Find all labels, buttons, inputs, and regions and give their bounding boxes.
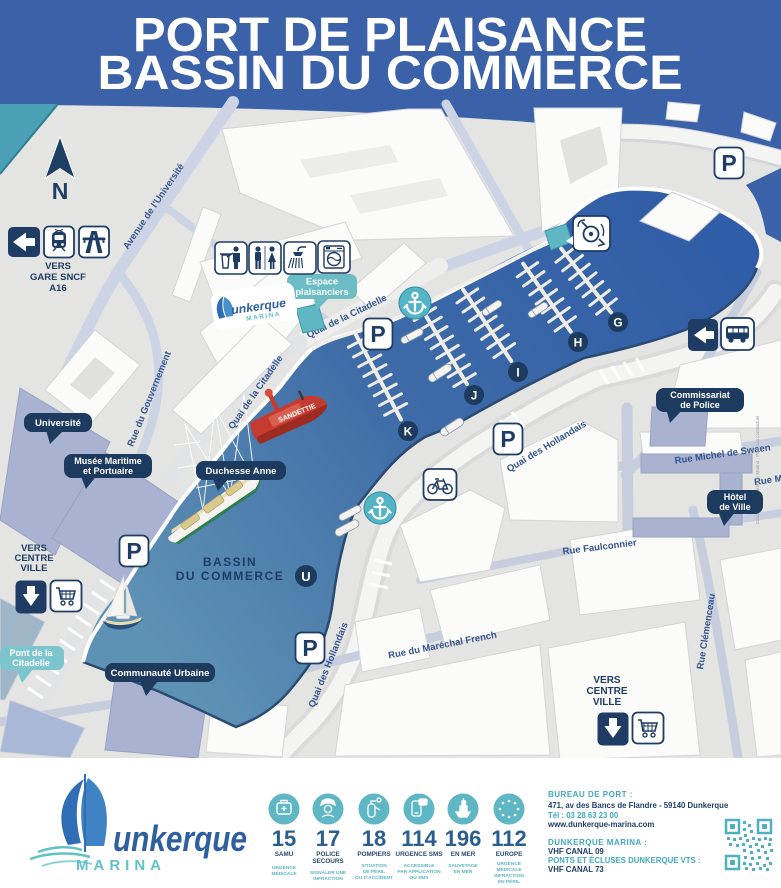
svg-text:Musée Maritime: Musée Maritime (74, 456, 142, 466)
svg-text:INFRACTION: INFRACTION (313, 876, 343, 882)
svg-text:EN MER: EN MER (451, 851, 476, 858)
svg-text:DU COMMERCE: DU COMMERCE (176, 569, 285, 583)
svg-text:Université: Université (35, 418, 81, 429)
svg-text:112: 112 (491, 826, 527, 851)
svg-text:BUREAU DE PORT :: BUREAU DE PORT : (548, 790, 633, 799)
svg-text:VERS: VERS (593, 675, 621, 686)
svg-text:unkerque: unkerque (113, 818, 247, 859)
svg-text:INFRACTION: INFRACTION (494, 873, 524, 879)
svg-text:EN MER: EN MER (454, 869, 473, 875)
svg-text:OU D'ACCIDENT: OU D'ACCIDENT (355, 875, 393, 881)
svg-text:Tél : 03 28 63 23 00: Tél : 03 28 63 23 00 (548, 811, 619, 820)
svg-text:P: P (302, 635, 317, 661)
svg-text:Espace: Espace (306, 277, 338, 287)
svg-text:POMPIERS: POMPIERS (357, 851, 390, 858)
svg-text:Citadelle: Citadelle (12, 658, 50, 668)
svg-text:EUROPE: EUROPE (496, 851, 523, 858)
svg-text:Communauté Urbaine: Communauté Urbaine (111, 668, 210, 679)
svg-text:POLICE: POLICE (316, 851, 339, 858)
svg-text:G: G (613, 316, 622, 330)
svg-text:URGENCE SMS: URGENCE SMS (396, 851, 443, 858)
svg-text:BASSIN DU COMMERCE: BASSIN DU COMMERCE (98, 46, 683, 100)
svg-text:VILLE: VILLE (593, 697, 622, 708)
svg-text:N: N (52, 178, 69, 204)
svg-text:VILLE: VILLE (21, 563, 48, 574)
svg-text:ACCESSIBLE: ACCESSIBLE (404, 863, 436, 869)
svg-text:Hôtel: Hôtel (724, 492, 747, 502)
svg-text:K: K (404, 425, 413, 439)
svg-text:196: 196 (445, 826, 482, 851)
svg-text:PONTS ET ÉCLUSES DUNKERQUE VTS: PONTS ET ÉCLUSES DUNKERQUE VTS : (548, 856, 701, 865)
svg-text:P: P (126, 538, 141, 564)
svg-text:VERS: VERS (45, 261, 71, 272)
svg-text:SECOURS: SECOURS (312, 858, 343, 865)
svg-text:Pont de la: Pont de la (9, 648, 53, 658)
svg-text:18: 18 (362, 826, 386, 851)
svg-text:H: H (574, 336, 583, 350)
svg-text:SAMU: SAMU (275, 851, 294, 858)
svg-text:MARINA: MARINA (76, 857, 166, 874)
svg-text:114: 114 (401, 826, 437, 851)
svg-text:BASSIN: BASSIN (203, 555, 257, 569)
svg-text:I: I (516, 366, 519, 380)
svg-text:de Police: de Police (680, 400, 720, 410)
svg-text:VHF CANAL 09: VHF CANAL 09 (548, 847, 604, 856)
svg-text:www.dunkerque-marina.com: www.dunkerque-marina.com (547, 820, 654, 829)
svg-text:VHF CANAL 73: VHF CANAL 73 (548, 865, 604, 874)
svg-text:de Ville: de Ville (719, 502, 750, 512)
svg-text:CENTRE: CENTRE (586, 686, 627, 697)
svg-text:OU SMS: OU SMS (410, 875, 430, 881)
svg-text:471, av des Bancs de Flandre -: 471, av des Bancs de Flandre - 59140 Dun… (548, 801, 729, 810)
svg-text:P: P (500, 426, 515, 452)
svg-text:GARE SNCF: GARE SNCF (30, 272, 86, 283)
svg-text:PAR APPLICATION: PAR APPLICATION (397, 869, 441, 875)
svg-text:Commissariat: Commissariat (670, 390, 730, 400)
svg-text:URGENCE: URGENCE (497, 861, 522, 867)
svg-text:P: P (721, 150, 736, 176)
svg-text:17: 17 (316, 826, 340, 851)
svg-text:SITUATION: SITUATION (361, 863, 387, 869)
svg-text:SIGNALER UNE: SIGNALER UNE (310, 870, 347, 876)
svg-text:A16: A16 (49, 283, 66, 294)
svg-text:Duchesse Anne: Duchesse Anne (206, 466, 277, 477)
svg-text:DUNKERQUE MARINA :: DUNKERQUE MARINA : (548, 838, 647, 847)
svg-text:U: U (301, 569, 310, 584)
svg-text:J: J (471, 389, 478, 403)
svg-text:plaisanciers: plaisanciers (295, 287, 348, 297)
svg-text:URGENCE: URGENCE (272, 865, 297, 871)
svg-text:P: P (370, 321, 385, 347)
svg-text:et Portuaire: et Portuaire (83, 466, 133, 476)
svg-text:15: 15 (272, 826, 296, 851)
svg-text:SAUVETAGE: SAUVETAGE (448, 863, 478, 869)
